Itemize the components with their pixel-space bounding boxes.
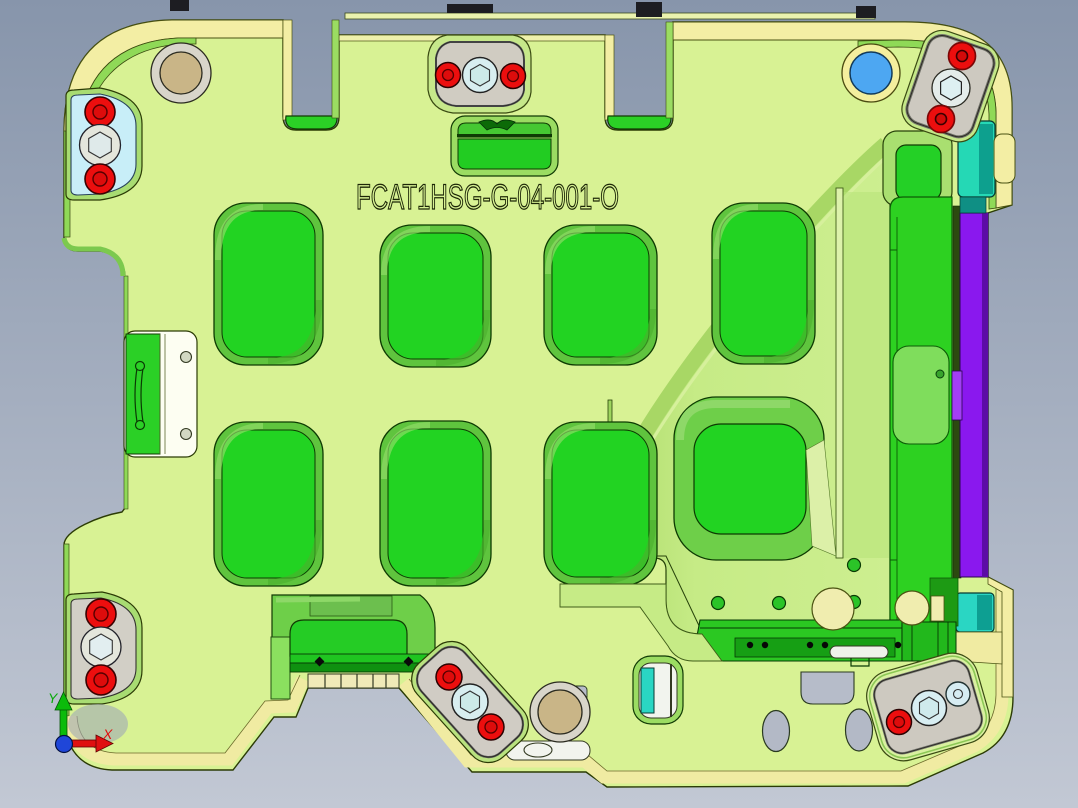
svg-text:X: X [102,726,113,742]
svg-text:FCAT1HSG-G-04-001-O: FCAT1HSG-G-04-001-O [356,178,619,217]
